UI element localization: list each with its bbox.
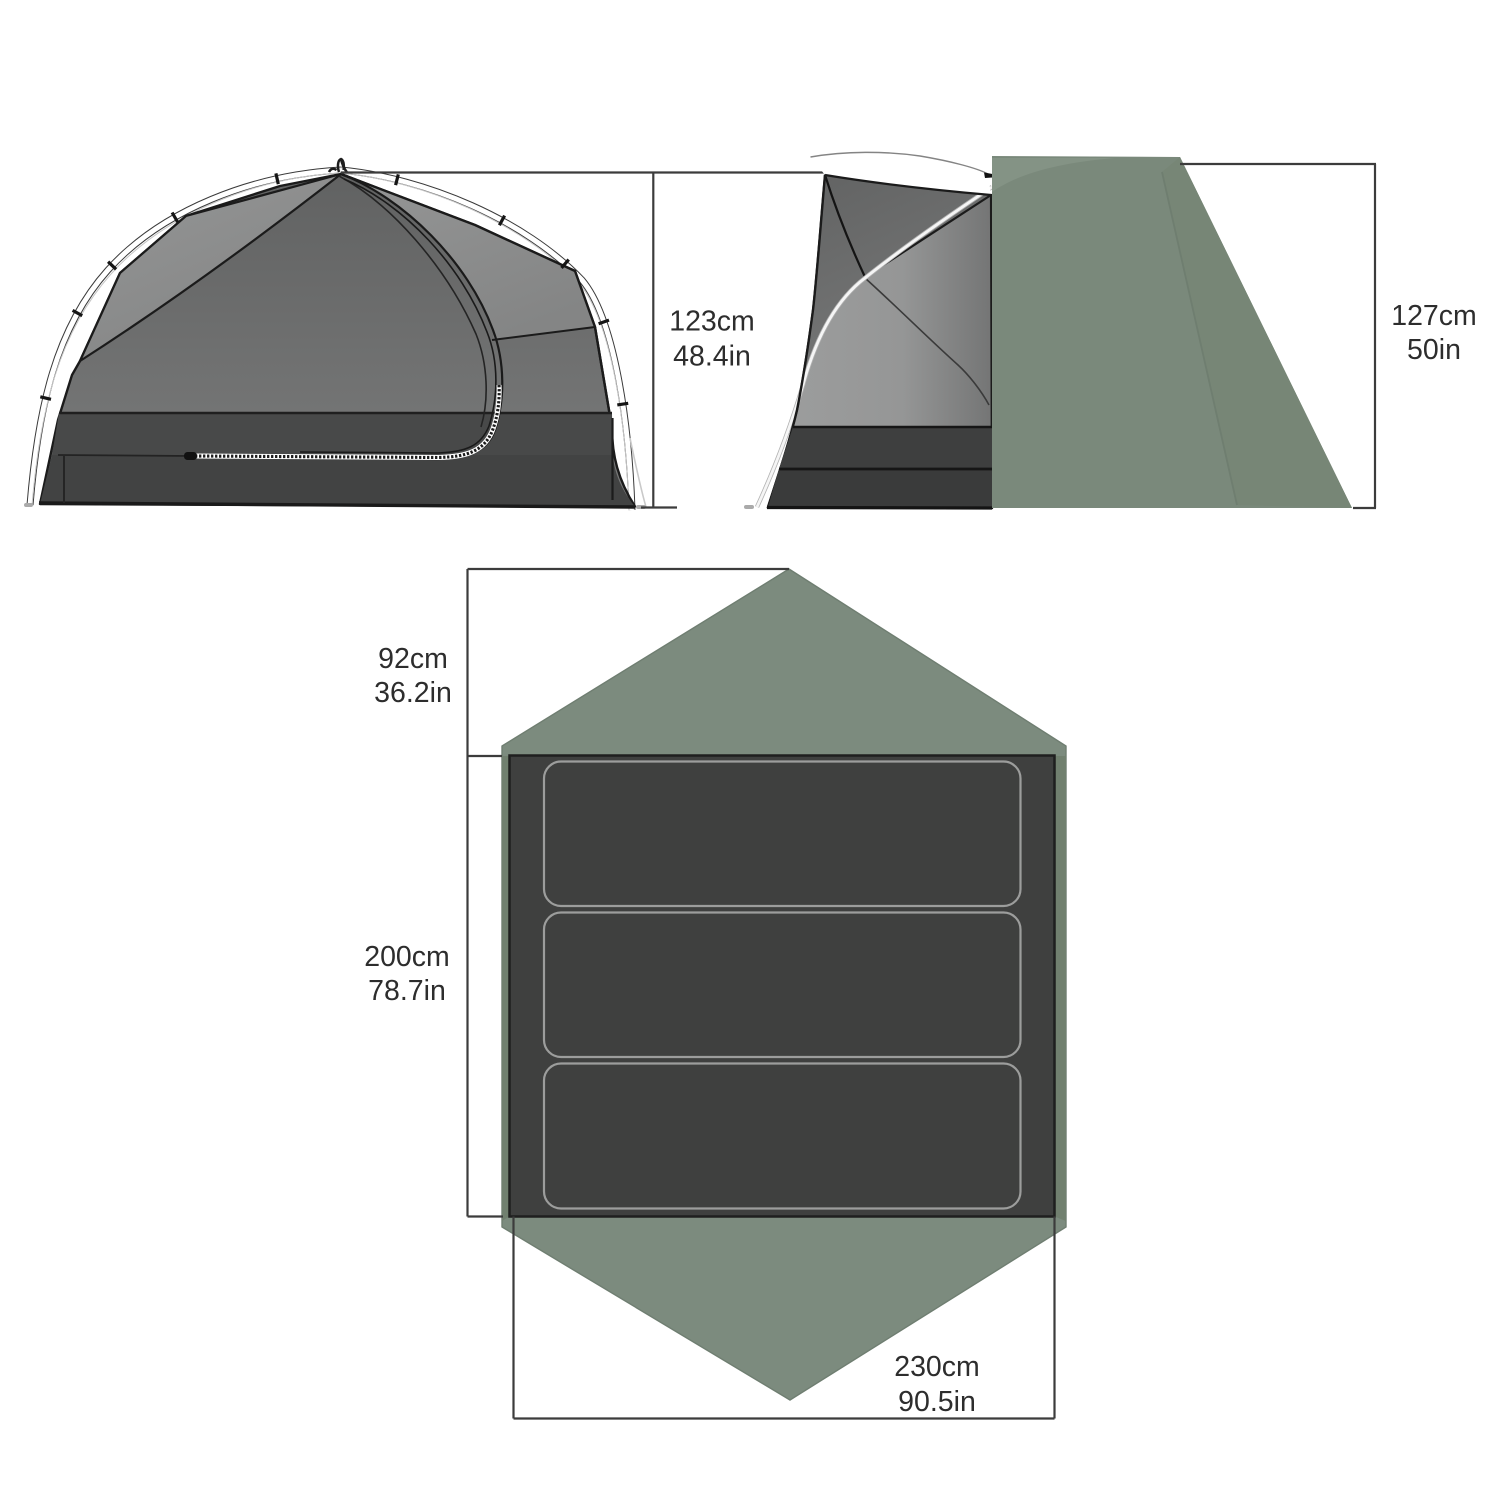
svg-text:50in: 50in [1407,334,1461,366]
svg-text:230cm: 230cm [894,1351,980,1383]
svg-text:48.4in: 48.4in [673,341,751,373]
svg-text:92cm: 92cm [378,643,448,675]
svg-text:127cm: 127cm [1391,300,1477,332]
svg-text:36.2in: 36.2in [374,677,452,709]
svg-text:78.7in: 78.7in [368,975,446,1007]
svg-text:90.5in: 90.5in [898,1386,976,1418]
svg-text:123cm: 123cm [669,306,755,338]
svg-text:200cm: 200cm [364,941,450,973]
